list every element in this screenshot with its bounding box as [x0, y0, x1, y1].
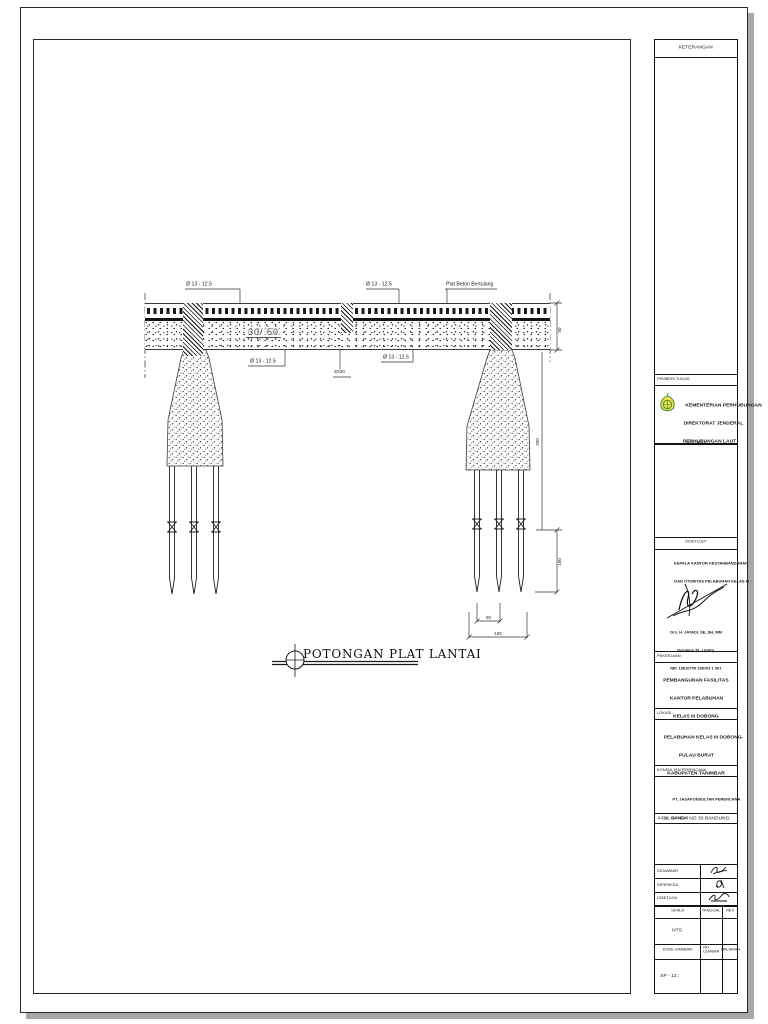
konsultan-label: KONSULTAN PERENCANA	[657, 769, 706, 774]
keterangan-header: KETERANGAN	[655, 40, 737, 58]
ministry-line1: KEMENTERIAN PERHUBUNGAN	[685, 403, 761, 409]
drawing-frame	[33, 39, 631, 994]
judul-box	[655, 824, 737, 865]
kode-value-row: SP - 12 :	[655, 960, 737, 993]
pekerjaan-header: PEKERJAAN :	[655, 652, 737, 663]
digambar-label: DIGAMBAR	[657, 869, 678, 874]
no-lembar-header: NO. LEMBAR	[703, 946, 719, 954]
pekerjaan-line1: PEMBANGUNAN FASILITAS	[663, 678, 729, 684]
skala-header: SKALA	[671, 909, 684, 914]
scale-header-row: SKALA TANGGAL REV	[655, 907, 737, 919]
lokasi-box: PELABUHAN KELAS III DOBONG- PULAU BURAT …	[655, 720, 737, 766]
kode-gambar-value: SP - 12 :	[657, 974, 679, 980]
lokasi-header: LOKASI :	[655, 709, 737, 720]
tanggal-value	[701, 919, 723, 944]
rev-value	[723, 919, 737, 944]
pekerjaan-line2: KANTOR PELABUHAN	[669, 696, 722, 702]
konsultan-box: PT. JASAKONSULTAN PERENCANA JL. BANDA NO…	[655, 777, 737, 814]
ministry-box: KEMENTERIAN PERHUBUNGAN DIREKTORAT JENDE…	[655, 386, 737, 445]
pemberi-tugas-label: PEMBERI TUGAS	[657, 378, 689, 383]
disetujui-header: DISETUJUI	[655, 538, 737, 550]
rev-header: REV	[726, 909, 734, 914]
scale-value-row: NTS	[655, 919, 737, 945]
kode-header-row: KODE GAMBAR NO. LEMBAR HALAMAN	[655, 945, 737, 960]
lokasi-line2: PULAU BURAT	[678, 753, 713, 759]
halaman-value	[723, 960, 737, 993]
pekerjaan-box: PEMBANGUNAN FASILITAS KANTOR PELABUHAN K…	[655, 663, 737, 709]
pemberi-tugas-header: PEMBERI TUGAS	[655, 375, 737, 386]
disetujui-signature-icon	[707, 890, 731, 908]
approval-box: KEPALA KANTOR KESYAHBANDARAN DAN OTORITA…	[655, 550, 737, 652]
spacer-box	[655, 445, 737, 538]
konsultan-header: KONSULTAN PERENCANA	[655, 766, 737, 777]
drawing-sheet: KETERANGAN PEMBERI TUGAS KEMENTERIAN PER…	[20, 7, 748, 1013]
no-lembar-value	[701, 960, 723, 993]
keterangan-body	[655, 58, 737, 375]
keterangan-label: KETERANGAN	[679, 45, 713, 51]
tanggal-header: TANGGAL	[702, 909, 721, 914]
approver-title-1: KEPALA KANTOR KESYAHBANDARAN	[674, 562, 748, 567]
lokasi-label: LOKASI :	[657, 712, 674, 717]
konsultan-name: PT. JASAKONSULTAN PERENCANA	[672, 798, 740, 803]
disetujui-row-label: DISETUJUI	[657, 897, 677, 902]
halaman-header: HALAMAN	[720, 948, 739, 953]
approval-signature-icon	[661, 572, 731, 629]
diperiksa-label: DIPERIKSA	[657, 883, 678, 888]
approver-name: Drs. H. JAYADI, SE, SH, MM	[670, 631, 722, 636]
title-block: KETERANGAN PEMBERI TUGAS KEMENTERIAN PER…	[654, 39, 738, 994]
disetujui-row: DISETUJUI	[655, 893, 737, 907]
judul-header: JUDUL GAMBAR	[655, 814, 737, 824]
kode-gambar-header: KODE GAMBAR	[663, 948, 692, 953]
ministry-line2: DIREKTORAT JENDERAL	[684, 421, 744, 427]
pekerjaan-label: PEKERJAAN :	[657, 655, 683, 660]
skala-value: NTS	[673, 928, 683, 934]
disetujui-label: DISETUJUI	[686, 540, 706, 545]
lokasi-line1: PELABUHAN KELAS III DOBONG-	[664, 735, 744, 741]
judul-label: JUDUL GAMBAR	[657, 816, 688, 821]
ministry-logo-icon	[659, 393, 676, 420]
